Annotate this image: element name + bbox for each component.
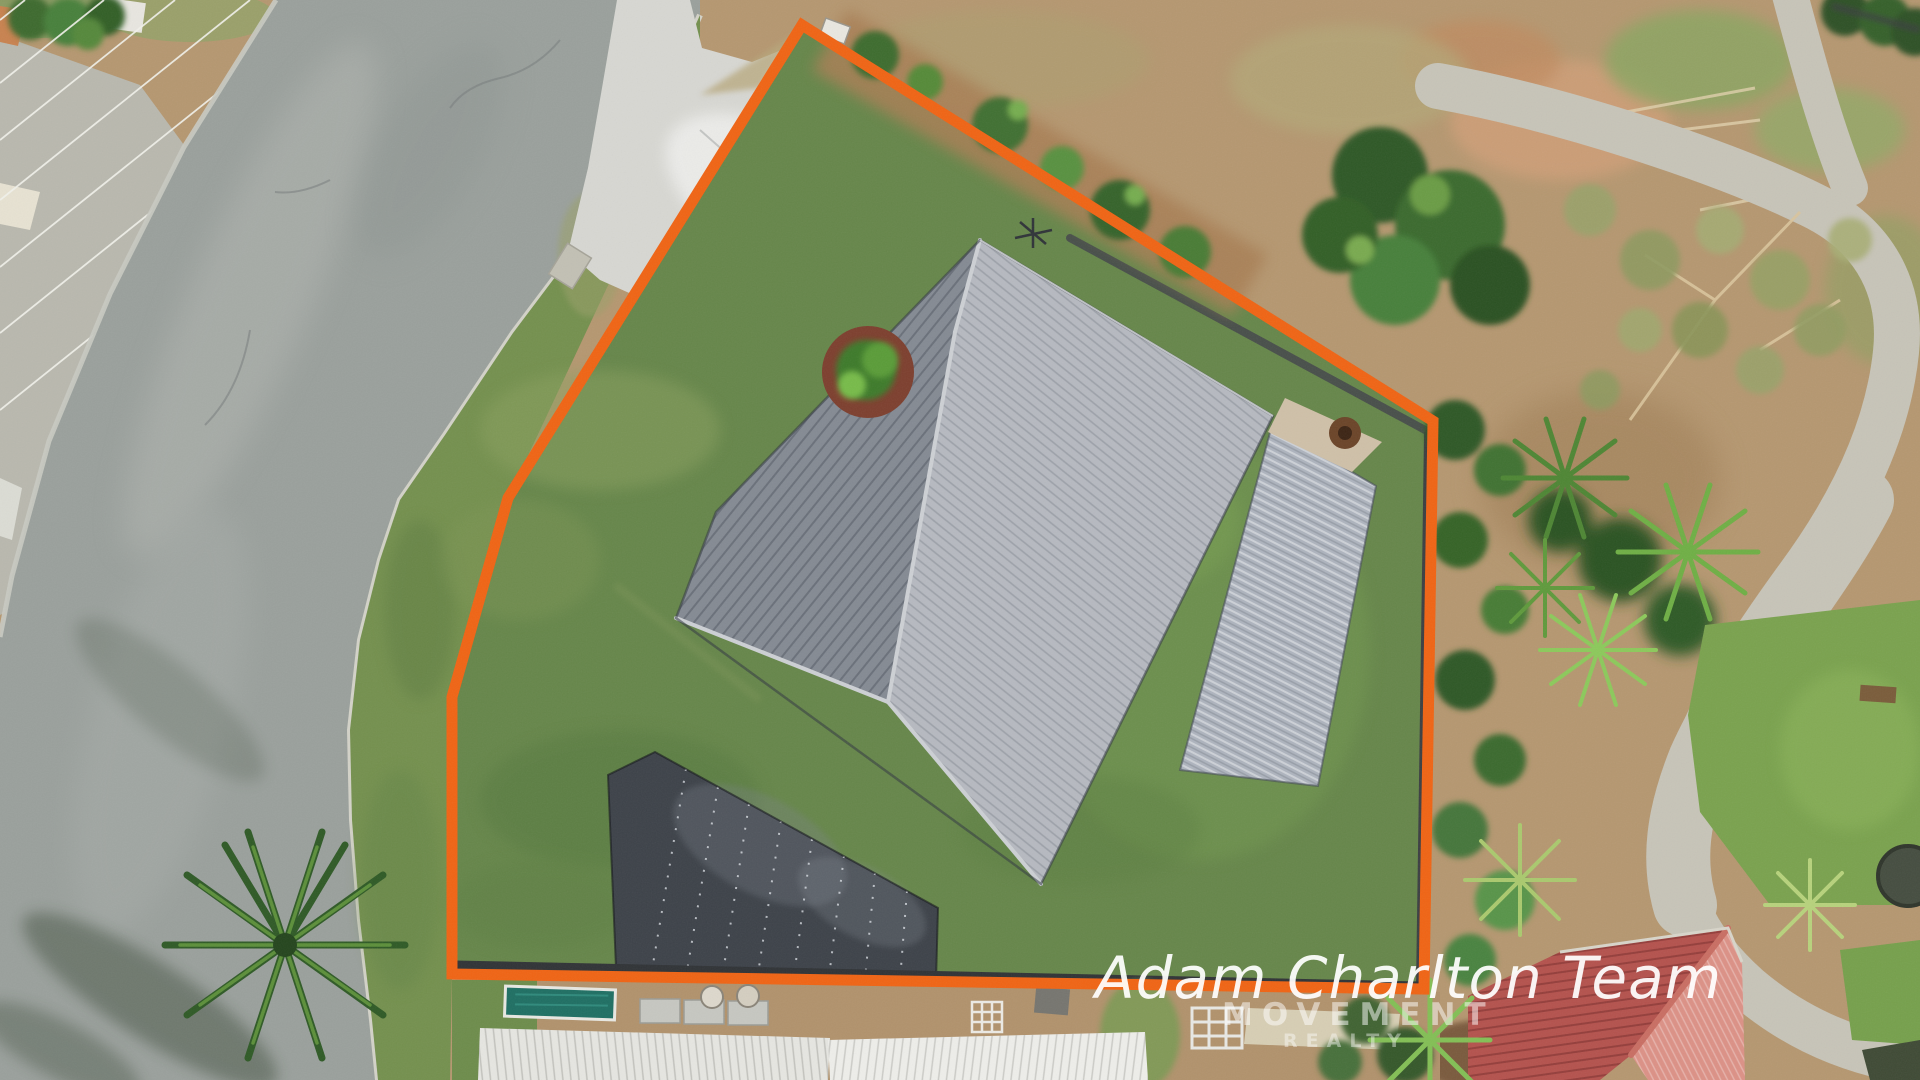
aerial-property-photo: Adam Charlton Team MOVEMENT REALTY [0, 0, 1920, 1080]
aerial-scene [0, 0, 1920, 1080]
photo-grain [0, 0, 1920, 1080]
